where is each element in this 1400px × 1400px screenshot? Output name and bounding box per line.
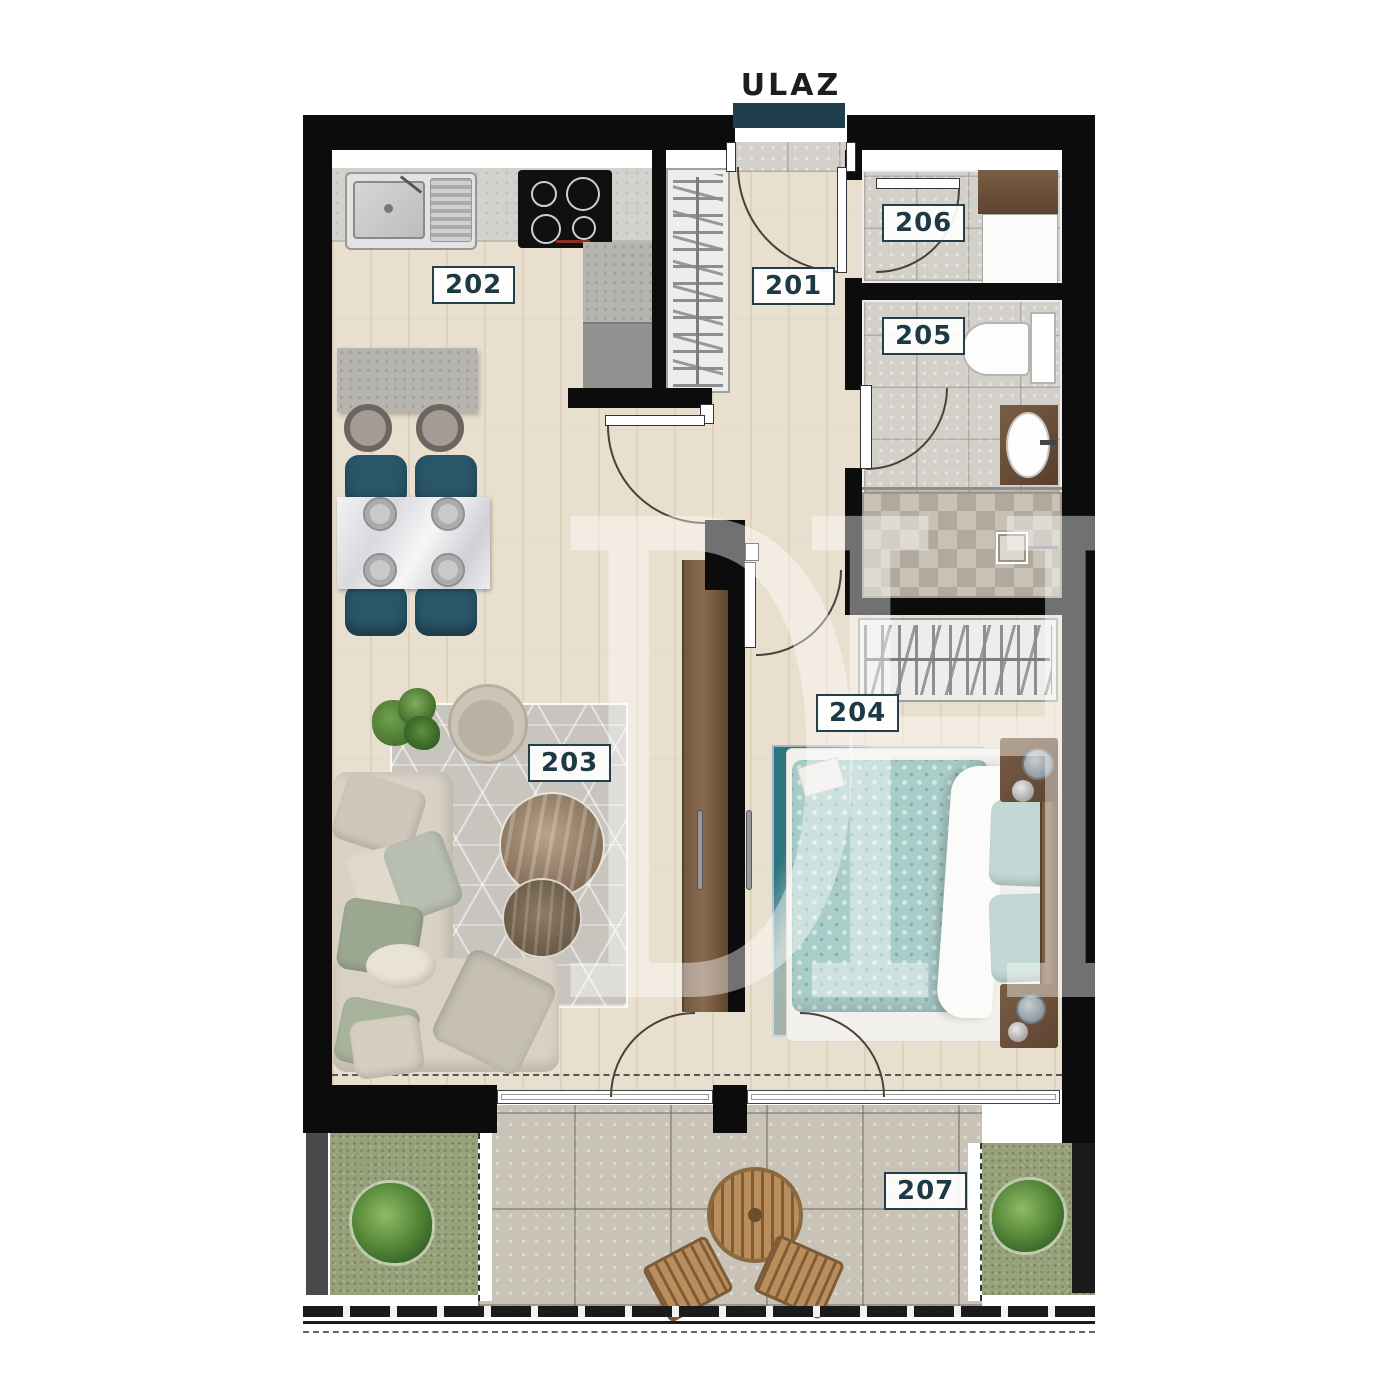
room-label-201: 201 [752,267,835,305]
terrace-railing [303,1306,1095,1317]
overhang-dashed-line [332,1074,1062,1076]
wall-terrace-pillar [713,1085,747,1133]
wall-top-right [847,115,1095,150]
shower-drain [996,532,1028,564]
bedroom-wardrobe [858,618,1058,702]
shower-floor [862,492,1062,598]
dining-chair [415,584,477,636]
wall-bottom-left [303,1085,497,1133]
bedside-lamp [1022,748,1054,780]
cooktop-burner [531,181,557,207]
bedside-lamp [1016,994,1046,1024]
wall-left [303,115,332,1133]
bar-stool [416,404,464,452]
sliding-door-handle [746,810,752,890]
terrace-boundary-right [968,1143,982,1301]
sink-drain [384,204,393,213]
room-label-202: 202 [432,266,515,304]
wall-kitchen-hall [652,150,666,390]
bed-headboard [1040,795,1058,991]
shower-arm [1028,546,1058,549]
laundry-counter [978,170,1058,214]
sink-drainboard [430,178,472,242]
grass-edge-strip-left [306,1133,328,1295]
kitchen-appliance [583,322,657,388]
dining-chair [345,584,407,636]
room-label-205: 205 [882,317,965,355]
wardrobe-rail [866,658,1050,661]
terrace-door-frame-bedroom [747,1090,1060,1104]
entrance-jamb-left [726,142,736,172]
bathroom-door-leaf [860,385,872,469]
media-wall-panel [682,560,728,1012]
terrace-railing-line [303,1321,1095,1324]
entrance-door-leaf [837,167,847,273]
bedroom-door-leaf [744,562,756,648]
room-label-203: 203 [528,744,611,782]
wardrobe-rail [696,177,699,385]
wall-hall-east-3 [845,468,862,598]
bush [352,1183,432,1263]
wall-kitchen-south [568,388,712,408]
kitchen-tall-unit [583,242,657,322]
floor-plan: ULAZ [0,0,1400,1400]
cooktop-burner [566,177,600,211]
sofa-pillow [348,1013,425,1080]
bedroom-door-jamb [745,543,759,561]
washing-machine [982,214,1058,284]
bedside-lamp-base [1008,1022,1028,1042]
wall-bath-bedroom [845,598,1062,615]
wall-right [1062,115,1095,1143]
laundry-door-leaf [876,178,960,189]
bedside-lamp-base [1012,780,1034,802]
coffee-table-small [502,878,582,958]
terrace-table-center [748,1208,762,1222]
place-setting [363,497,397,531]
wall-top-left [303,115,735,150]
place-setting [431,553,465,587]
hallway-wardrobe [666,168,730,393]
dining-table [337,497,490,589]
terrace-boundary-left [478,1133,492,1301]
bar-stool [344,404,392,452]
cooktop-burner [572,216,596,240]
entrance-label: ULAZ [735,68,847,103]
room-label-206: 206 [882,204,965,242]
sliding-door-handle [697,810,703,890]
place-setting [431,497,465,531]
vanity-faucet [1040,440,1056,445]
entrance-jamb-right [846,142,856,172]
place-setting [363,553,397,587]
kitchen-island [337,348,477,412]
wall-laundry-bath [845,283,1062,300]
kitchen-door-leaf [605,415,705,426]
toilet-bowl [962,322,1030,376]
sofa-bolster [366,944,436,988]
shower-glass-line [862,487,1062,490]
vanity-basin [1006,412,1050,478]
wall-living-bedroom [728,590,745,1012]
entrance-marker-bar [733,103,845,128]
plant [404,716,440,750]
wall-hall-bedroom-junction [705,520,745,590]
property-dashed-line [303,1331,1095,1333]
room-label-207: 207 [884,1172,967,1210]
armchair-seat [458,700,514,756]
toilet-tank [1030,312,1056,384]
room-label-204: 204 [816,694,899,732]
grass-edge-strip-right [1072,1143,1095,1293]
